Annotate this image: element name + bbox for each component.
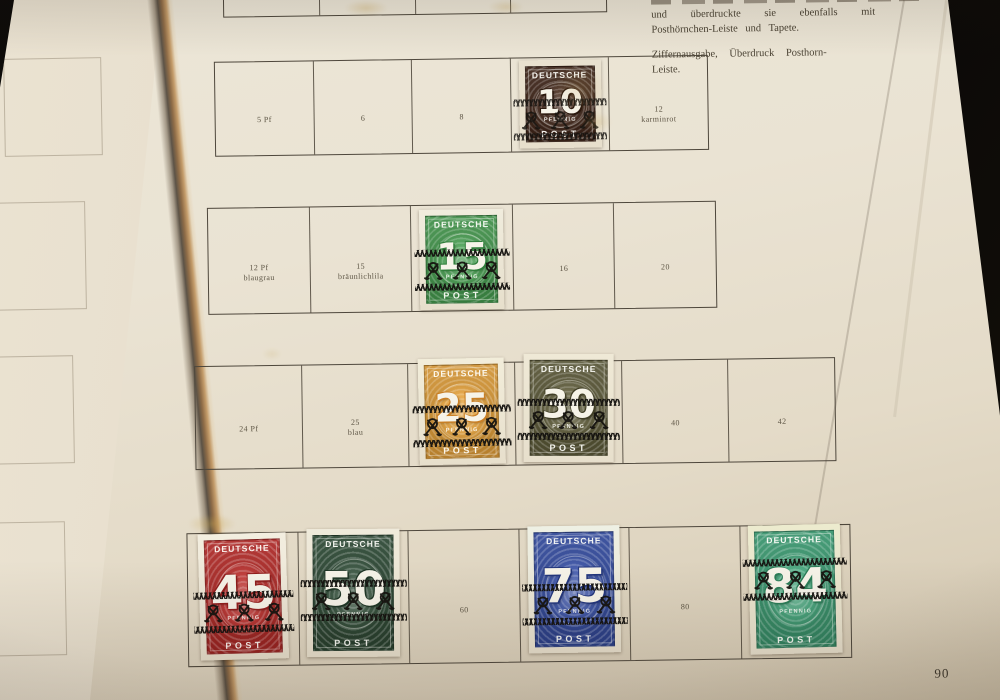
overprint-chain-band <box>522 583 627 591</box>
grid-cell: DEUTSCHE84PFENNIGPOST <box>740 525 851 659</box>
stamp-84-pfennig: DEUTSCHE84PFENNIGPOST <box>748 524 843 655</box>
overprint-posthorn-row <box>522 591 627 617</box>
posthorn-band-overprint <box>193 590 294 634</box>
catalog-label: 6 <box>314 113 412 124</box>
catalog-label: 12 Pfblaugrau <box>209 262 310 283</box>
grid-cell: 25blau <box>302 364 410 467</box>
grid-cell: 12 Pfblaugrau <box>208 207 311 313</box>
catalog-label-line: bräunlichlila <box>310 271 411 282</box>
catalog-label-line: 6 <box>314 113 412 124</box>
overprint-posthorn-row <box>413 412 512 439</box>
posthorn-icon <box>550 109 571 130</box>
grid-cell: 5 Pf <box>215 61 315 155</box>
posthorn-icon <box>816 567 837 588</box>
catalog-label-line: 8 <box>413 112 511 123</box>
stamp-country-text: DEUTSCHE <box>526 69 594 80</box>
posthorn-band-overprint <box>513 98 607 140</box>
posthorn-icon <box>343 590 364 611</box>
catalog-label-line: 60 <box>409 605 519 617</box>
grid-cell: DEUTSCHE75PFENNIGPOST <box>519 528 631 662</box>
grid-cell <box>319 0 415 15</box>
catalog-label: 15bräunlichlila <box>310 261 411 282</box>
grid-cell: 15bräunlichlila <box>309 206 412 312</box>
stamp-country-text: DEUTSCHE <box>425 368 497 380</box>
stamp-post-text: POST <box>531 443 607 453</box>
stamp-country-text: DEUTSCHE <box>314 539 393 549</box>
posthorn-icon <box>481 259 502 280</box>
stamp-country-text: DEUTSCHE <box>755 534 833 546</box>
overprint-chain-band <box>517 399 620 406</box>
catalog-label-line: 20 <box>615 262 716 273</box>
intro-line: Posthörnchen-Leiste und Tapete. <box>651 20 943 37</box>
catalog-label: 25blau <box>303 417 409 438</box>
catalog-label-line: 24 Pf <box>196 424 302 435</box>
posthorn-icon <box>451 415 472 436</box>
grid-cell <box>415 0 511 14</box>
album-grid-row-values-5-12: 5 Pf68DEUTSCHE10PFENNIGPOST12karminrot <box>214 55 709 157</box>
posthorn-band-overprint <box>742 557 848 600</box>
posthorn-icon <box>233 601 255 623</box>
overprint-chain-band <box>415 283 511 291</box>
catalog-label: 5 Pf <box>216 114 314 125</box>
page-content: 5 Pf68DEUTSCHE10PFENNIGPOST12karminrot12… <box>0 0 1000 700</box>
stamp-75-pfennig: DEUTSCHE75PFENNIGPOST <box>528 525 622 653</box>
posthorn-band-overprint <box>413 404 512 447</box>
posthorn-icon <box>578 108 599 129</box>
stamp-10-pfennig: DEUTSCHE10PFENNIGPOST <box>518 59 601 148</box>
overprint-posthorn-row <box>300 588 406 614</box>
album-grid-row-top-partial <box>222 0 607 18</box>
posthorn-icon <box>263 600 285 622</box>
grid-cell: 16 <box>513 203 616 309</box>
grid-cell <box>224 0 320 17</box>
grid-cell: DEUTSCHE15PFENNIGPOST <box>411 205 514 311</box>
stamp-30-pfennig: DEUTSCHE30PFENNIGPOST <box>524 354 614 462</box>
grid-cell: 24 Pf <box>195 366 303 469</box>
overprint-chain-band <box>301 614 407 622</box>
grid-cell: 60 <box>408 530 520 664</box>
intro-text-block: und überdruckte sie ebenfalls mit Posthö… <box>651 0 944 79</box>
grid-cell: 42 <box>728 358 835 461</box>
stamp-post-text: POST <box>758 634 836 646</box>
page-number: 90 <box>934 666 949 682</box>
section-heading: Leiste. <box>652 60 944 77</box>
stamp-country-text: DEUTSCHE <box>205 542 279 554</box>
posthorn-band-overprint <box>517 399 620 440</box>
stamp-album-photo: 5 Pf68DEUTSCHE10PFENNIGPOST12karminrot12… <box>0 0 1000 700</box>
catalog-label: 40 <box>623 418 729 429</box>
grid-cell: 80 <box>629 526 741 660</box>
posthorn-icon <box>785 568 806 589</box>
grid-cell: DEUTSCHE30PFENNIGPOST <box>515 361 623 464</box>
posthorn-icon <box>589 409 610 430</box>
stamp-post-text: POST <box>207 639 281 651</box>
grid-cell: 8 <box>412 59 512 153</box>
catalog-label-line: 5 Pf <box>216 114 314 125</box>
catalog-label-line: 80 <box>630 602 740 614</box>
album-grid-row-values-12-20: 12 Pfblaugrau15bräunlichlilaDEUTSCHE15PF… <box>207 201 717 315</box>
overprint-posthorn-row <box>513 106 607 132</box>
clipped-text-line <box>651 0 929 5</box>
grid-cell: DEUTSCHE25PFENNIGPOST <box>408 363 516 466</box>
overprint-chain-band <box>300 580 406 588</box>
posthorn-icon <box>422 260 443 281</box>
stamp-country-text: DEUTSCHE <box>535 535 613 546</box>
grid-cell <box>511 0 606 13</box>
catalog-label-line: blau <box>303 427 409 438</box>
posthorn-icon <box>533 594 554 615</box>
grid-cell: DEUTSCHE45PFENNIGPOST <box>187 533 299 667</box>
grid-cell: DEUTSCHE10PFENNIGPOST <box>511 57 611 151</box>
posthorn-icon <box>481 414 502 435</box>
posthorn-icon <box>527 409 548 430</box>
overprint-posthorn-row <box>193 598 294 626</box>
overprint-chain-band <box>522 617 627 625</box>
catalog-label: 24 Pf <box>196 424 302 435</box>
catalog-label: 12karminrot <box>610 104 708 125</box>
overprint-posthorn-row <box>517 407 620 432</box>
catalog-label: 16 <box>513 263 614 274</box>
catalog-label-line: karminrot <box>610 114 708 125</box>
posthorn-icon <box>452 259 473 280</box>
catalog-label-line: 40 <box>623 418 729 429</box>
section-heading: Ziffernausgabe, Überdruck Posthorn- <box>652 45 944 62</box>
grid-cell: 6 <box>313 60 413 154</box>
catalog-label: 80 <box>630 602 740 614</box>
posthorn-icon <box>596 594 617 615</box>
overprint-chain-band <box>513 98 607 106</box>
catalog-label: 42 <box>729 416 835 427</box>
album-grid-row-values-45-84: DEUTSCHE45PFENNIGPOSTDEUTSCHE50PFENNIGPO… <box>186 524 852 667</box>
catalog-label-line: 16 <box>513 263 614 274</box>
posthorn-band-overprint <box>300 580 406 622</box>
intro-line: und überdruckte sie ebenfalls mit <box>651 5 943 22</box>
stamp-post-text: POST <box>536 633 614 644</box>
posthorn-icon <box>311 590 332 611</box>
posthorn-icon <box>558 409 579 430</box>
overprint-chain-band <box>517 433 620 440</box>
posthorn-icon <box>422 415 443 436</box>
stamp-pfennig-text: PFENNIG <box>757 608 835 616</box>
posthorn-icon <box>202 602 224 624</box>
grid-cell: 20 <box>614 202 716 308</box>
stamp-25-pfennig: DEUTSCHE25PFENNIGPOST <box>418 357 506 465</box>
posthorn-icon <box>753 569 774 590</box>
stamp-15-pfennig: DEUTSCHE15PFENNIGPOST <box>419 209 504 310</box>
stamp-post-text: POST <box>314 638 393 648</box>
catalog-label-line: blaugrau <box>209 272 310 283</box>
stamp-country-text: DEUTSCHE <box>531 364 607 374</box>
stamp-post-text: POST <box>428 290 498 301</box>
posthorn-band-overprint <box>522 583 627 625</box>
posthorn-icon <box>564 594 585 615</box>
catalog-label: 20 <box>615 262 716 273</box>
catalog-label: 8 <box>413 112 511 123</box>
posthorn-icon <box>375 590 396 611</box>
posthorn-band-overprint <box>414 249 510 291</box>
overprint-chain-band <box>414 249 510 257</box>
posthorn-icon <box>521 109 542 130</box>
catalog-label-line: 42 <box>729 416 835 427</box>
stamp-45-pfennig: DEUTSCHE45PFENNIGPOST <box>197 532 288 660</box>
overprint-posthorn-row <box>414 257 510 283</box>
grid-cell: DEUTSCHE50PFENNIGPOST <box>298 531 410 665</box>
album-grid-row-values-24-42: 24 Pf25blauDEUTSCHE25PFENNIGPOSTDEUTSCHE… <box>194 357 836 470</box>
stamp-country-text: DEUTSCHE <box>427 219 497 230</box>
stamp-50-pfennig: DEUTSCHE50PFENNIGPOST <box>307 529 401 657</box>
overprint-posthorn-row <box>743 565 848 592</box>
grid-cell: 40 <box>622 360 730 463</box>
overprint-chain-band <box>514 132 608 140</box>
catalog-label: 60 <box>409 605 519 617</box>
